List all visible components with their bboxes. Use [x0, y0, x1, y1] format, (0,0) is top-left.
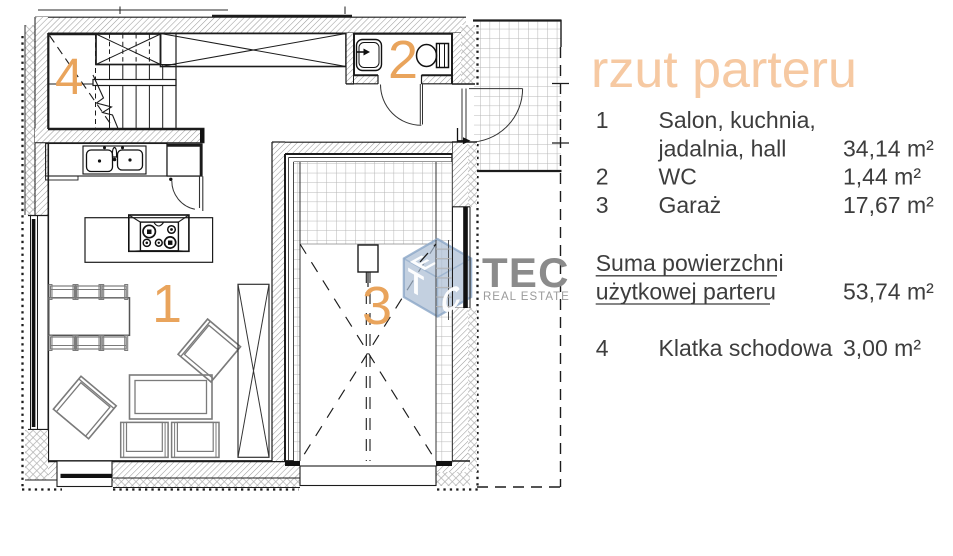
- svg-text:Salon, kuchnia,: Salon, kuchnia,: [659, 107, 816, 133]
- svg-text:3: 3: [362, 276, 392, 336]
- svg-text:TEC: TEC: [482, 249, 570, 296]
- svg-text:użytkowej parteru: użytkowej parteru: [596, 278, 776, 304]
- svg-text:REAL ESTATE: REAL ESTATE: [483, 291, 570, 303]
- svg-text:34,14 m²: 34,14 m²: [843, 135, 934, 161]
- svg-text:1: 1: [596, 107, 609, 133]
- svg-text:Klatka schodowa: Klatka schodowa: [659, 335, 833, 361]
- svg-text:3,00 m²: 3,00 m²: [843, 335, 921, 361]
- svg-text:17,67 m²: 17,67 m²: [843, 192, 934, 218]
- svg-text:1,44 m²: 1,44 m²: [843, 164, 921, 190]
- svg-text:4: 4: [55, 48, 83, 105]
- svg-text:Garaż: Garaż: [659, 192, 722, 218]
- svg-text:2: 2: [596, 164, 609, 190]
- svg-text:1: 1: [152, 274, 182, 334]
- svg-text:3: 3: [596, 192, 609, 218]
- svg-text:4: 4: [596, 335, 609, 361]
- svg-text:Suma powierzchni: Suma powierzchni: [596, 250, 784, 276]
- svg-text:rzut parteru: rzut parteru: [591, 41, 857, 99]
- svg-text:WC: WC: [659, 164, 697, 190]
- svg-text:jadalnia, hall: jadalnia, hall: [658, 135, 787, 161]
- svg-text:2: 2: [388, 30, 418, 90]
- svg-text:53,74 m²: 53,74 m²: [843, 278, 934, 304]
